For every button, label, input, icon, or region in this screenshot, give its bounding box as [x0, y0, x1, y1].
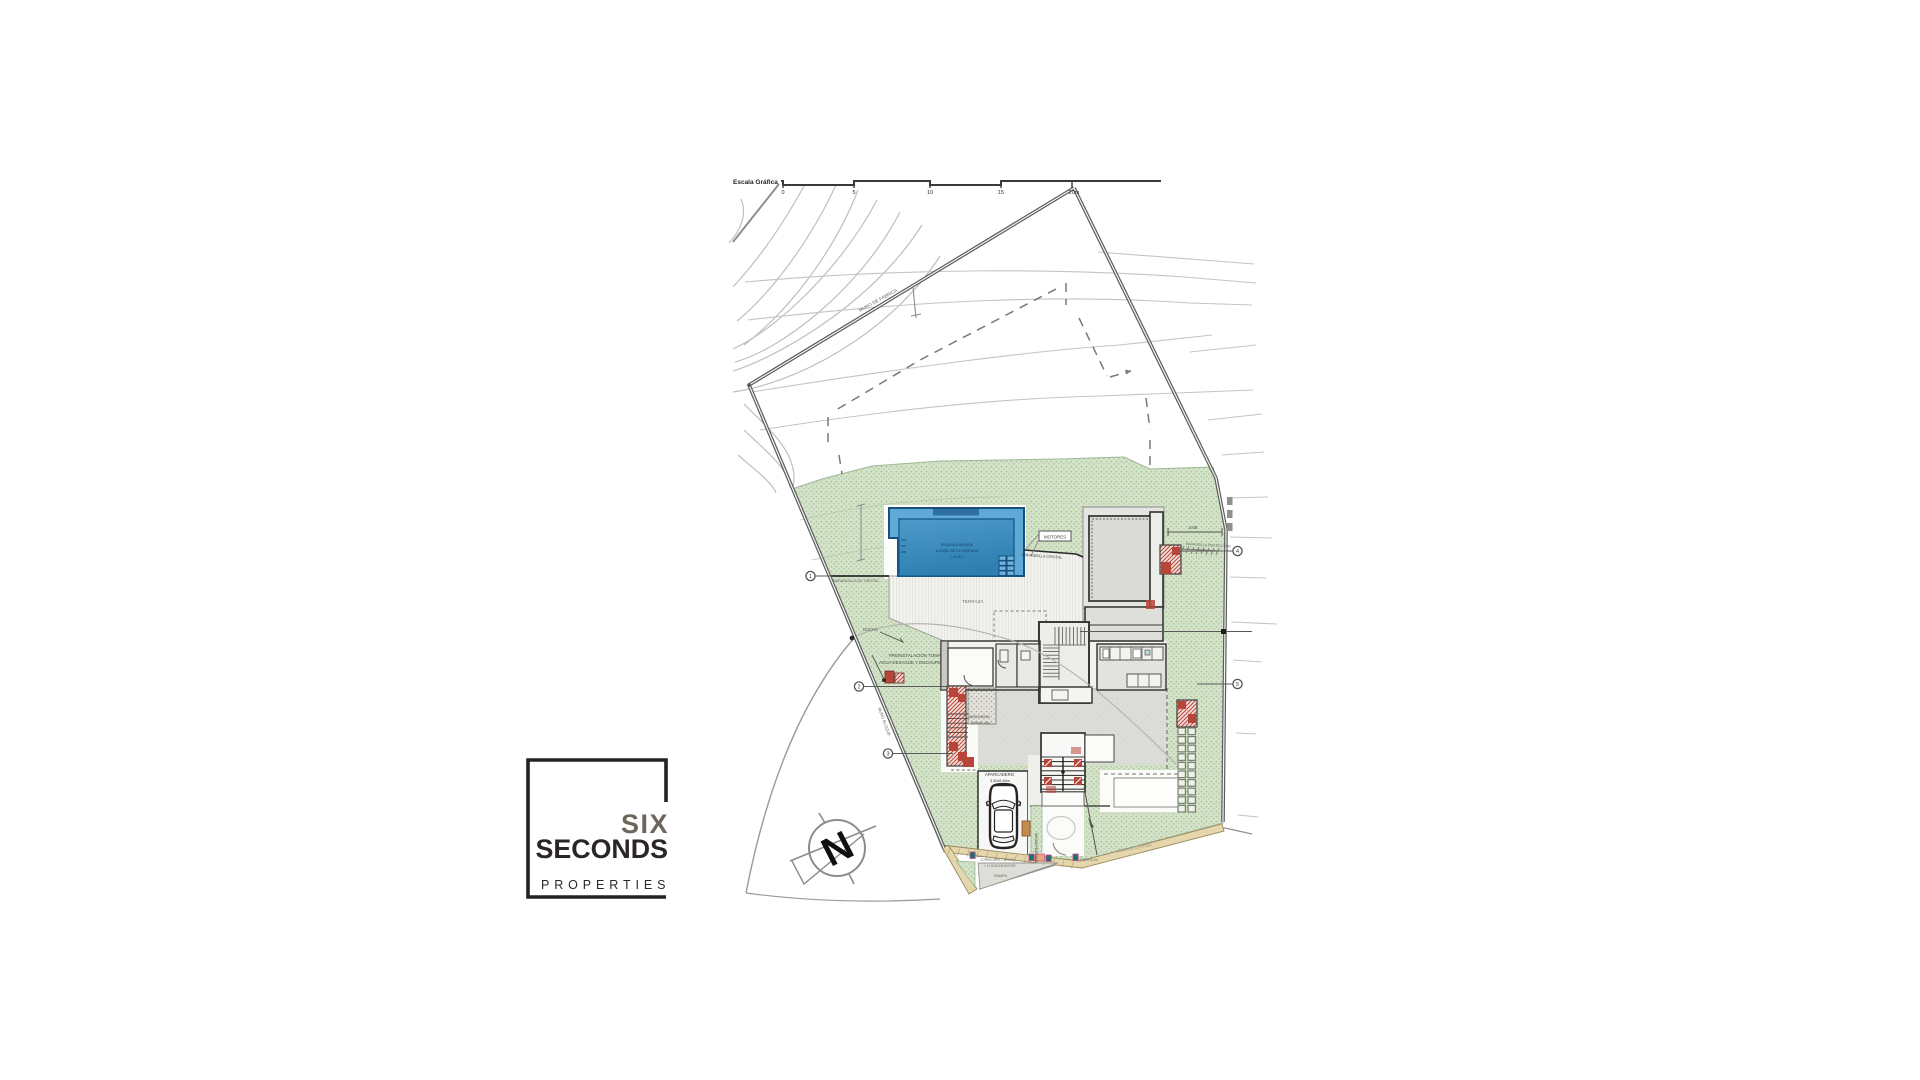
svg-text:PUERTA 1m: PUERTA 1m [1080, 858, 1098, 862]
svg-text:3.30x5.50m: 3.30x5.50m [990, 779, 1010, 783]
svg-text:4.00: 4.00 [1189, 525, 1198, 530]
svg-text:1: 1 [809, 574, 812, 580]
svg-text:Escala Gráfica: Escala Gráfica [733, 179, 778, 186]
svg-text:PROPERTIES: PROPERTIES [541, 878, 670, 892]
svg-text:DUCHA: DUCHA [863, 627, 878, 632]
svg-text:+ 1 HOJA EN MOTOR: + 1 HOJA EN MOTOR [984, 864, 1016, 868]
svg-text:2: 2 [857, 685, 860, 691]
svg-text:AGUA DESAGÜE Y ENCHUFE: AGUA DESAGÜE Y ENCHUFE [879, 660, 940, 665]
svg-text:MOTORES: MOTORES [1044, 535, 1066, 540]
svg-text:SECONDS: SECONDS [535, 834, 668, 864]
svg-text:PREINSTALACIÓN TOMA: PREINSTALACIÓN TOMA [889, 653, 941, 658]
svg-text:( +0,20 ): ( +0,20 ) [950, 555, 963, 559]
svg-text:10: 10 [927, 190, 933, 196]
svg-text:15: 15 [998, 190, 1004, 196]
svg-text:APARCADERO: APARCADERO [985, 772, 1015, 777]
svg-text:4: 4 [1236, 549, 1239, 555]
svg-text:3: 3 [886, 752, 889, 758]
svg-text:TERRAZA: TERRAZA [962, 599, 984, 604]
svg-text:0: 0 [781, 190, 784, 196]
svg-text:PISCINA A MEDIDA: PISCINA A MEDIDA [941, 543, 974, 547]
svg-text:CORREDERA 2 HOJAS: CORREDERA 2 HOJAS [980, 858, 1014, 862]
svg-text:20m: 20m [1069, 190, 1080, 196]
svg-text:BARANDILLA DE CRISTAL: BARANDILLA DE CRISTAL [833, 579, 880, 583]
svg-text:Arenero 4m²: Arenero 4m² [971, 721, 991, 725]
svg-text:5: 5 [852, 190, 855, 196]
svg-text:5: 5 [1236, 682, 1239, 688]
svg-text:RAMPA: RAMPA [994, 874, 1008, 878]
svg-text:JARDINERA: JARDINERA [968, 715, 990, 719]
svg-text:SENDA PEATONAL: SENDA PEATONAL [1034, 833, 1038, 863]
svg-text:A NIVEL DE LA VIVIENDA: A NIVEL DE LA VIVIENDA [936, 549, 979, 553]
svg-text:N: N [815, 823, 861, 875]
